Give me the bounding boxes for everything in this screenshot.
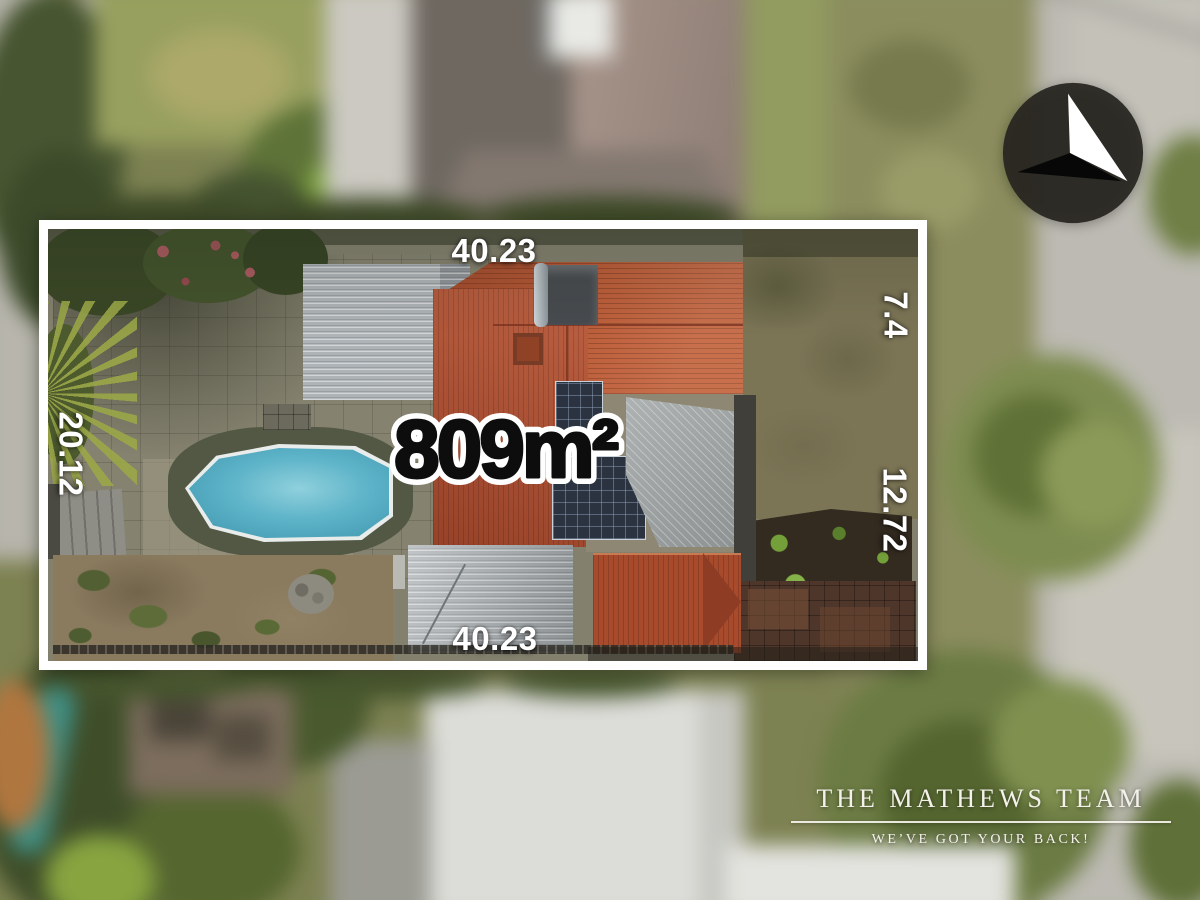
hedge-below-lot [500, 668, 680, 698]
verge-light [880, 150, 980, 230]
north-arrow-icon [1000, 80, 1146, 226]
aerial-property-photo: 40.23 40.23 20.12 7.4 12.72 809m² 809m² … [0, 0, 1200, 900]
solar-water-heater-neighbor [542, 0, 613, 58]
neighbor-house-dark-patch [150, 700, 210, 740]
white-roof-bottom-right [725, 845, 1015, 900]
team-name: THE MATHEWS TEAM [791, 783, 1171, 814]
verge-shade [850, 40, 970, 130]
dimension-bottom: 40.23 [452, 622, 537, 655]
street-tree-light [1040, 420, 1150, 530]
lawn-right-of-house [745, 0, 830, 240]
dimension-top: 40.23 [451, 234, 536, 267]
agency-branding: THE MATHEWS TEAM WE’VE GOT YOUR BACK! [791, 783, 1171, 849]
team-tagline: WE’VE GOT YOUR BACK! [791, 832, 1171, 849]
branding-divider [791, 821, 1171, 823]
white-roof-bottom [425, 690, 745, 900]
hedge-below-lot [60, 668, 260, 700]
lawn-dry-patch [150, 30, 290, 120]
dimension-right-lower: 12.72 [879, 467, 912, 552]
neighbor-house-dark-patch [215, 715, 270, 760]
dimension-right-upper: 7.4 [880, 291, 913, 338]
gray-roof-bottom [330, 740, 430, 900]
dimension-left: 20.12 [55, 411, 88, 496]
hedge-below-lot [270, 666, 490, 700]
area-label: 809m² [394, 404, 618, 495]
area-label-group: 809m² 809m² [340, 393, 670, 505]
